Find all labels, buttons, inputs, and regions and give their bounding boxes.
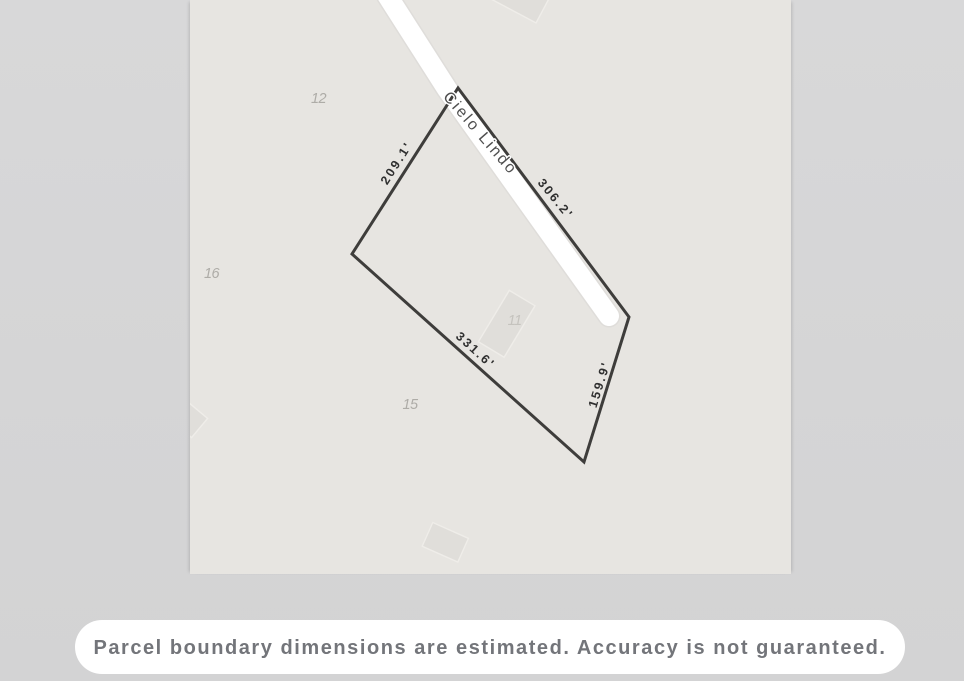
svg-text:11: 11: [508, 313, 522, 329]
svg-text:12: 12: [311, 91, 326, 107]
svg-text:16: 16: [204, 266, 220, 282]
svg-text:15: 15: [403, 397, 419, 413]
svg-text:Cielo Lindo: Cielo Lindo: [439, 89, 520, 179]
